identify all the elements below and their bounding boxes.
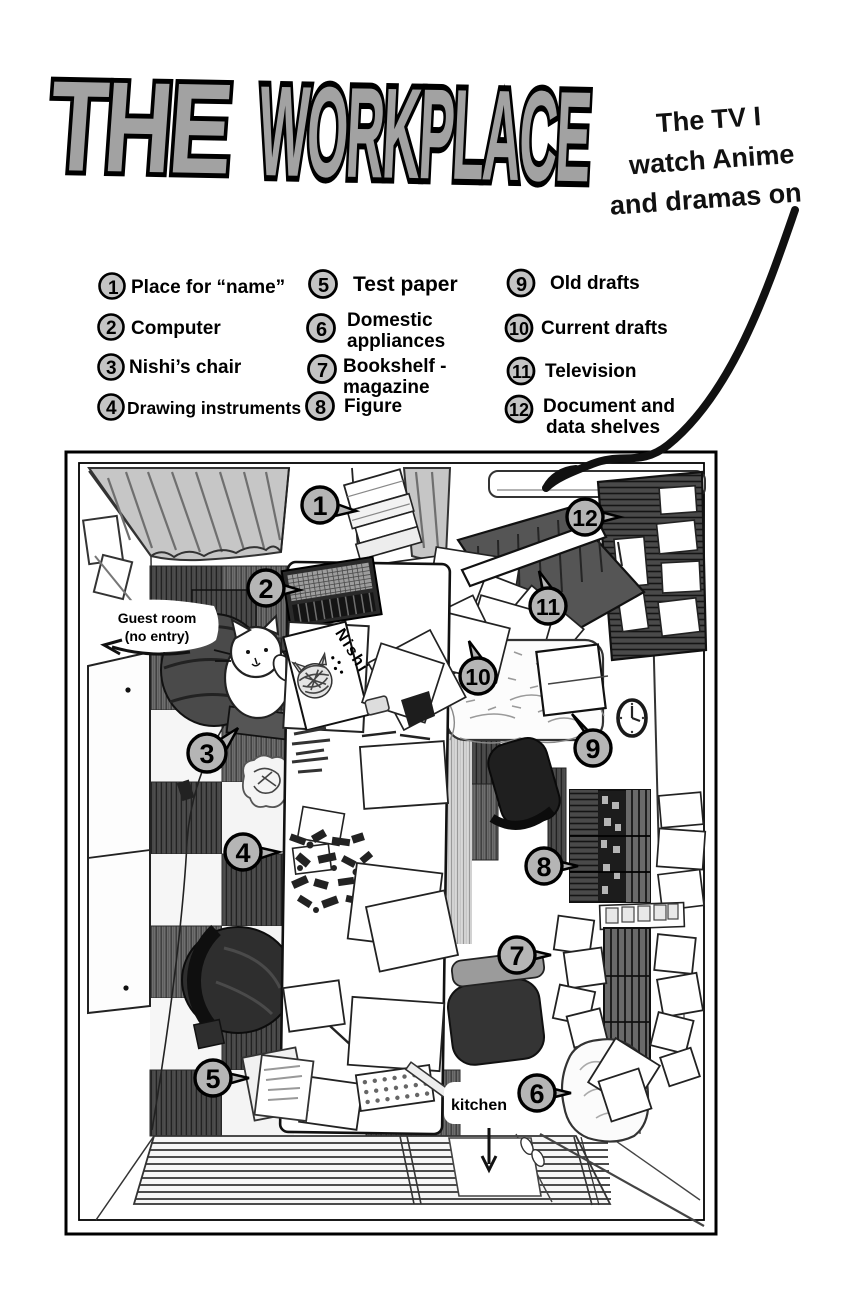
svg-text:11: 11 (512, 362, 531, 382)
svg-text:5: 5 (205, 1064, 220, 1094)
svg-text:Document and: Document and (543, 396, 675, 417)
svg-text:Guest room: Guest room (118, 610, 197, 626)
svg-text:3: 3 (106, 358, 117, 379)
svg-text:2: 2 (106, 318, 117, 339)
svg-text:9: 9 (516, 274, 527, 296)
svg-text:Place for “name”: Place for “name” (131, 277, 285, 298)
svg-text:5: 5 (318, 275, 329, 297)
svg-text:THE: THE (45, 54, 234, 201)
svg-text:8: 8 (315, 397, 326, 419)
svg-text:7: 7 (509, 941, 524, 971)
svg-text:Television: Television (545, 361, 637, 382)
svg-text:Drawing instruments: Drawing instruments (127, 398, 301, 418)
svg-text:Domestic: Domestic (347, 310, 433, 331)
svg-text:10: 10 (509, 319, 529, 339)
svg-text:12: 12 (572, 505, 598, 531)
svg-text:Figure: Figure (344, 396, 402, 417)
svg-text:kitchen: kitchen (451, 1097, 507, 1114)
svg-text:4: 4 (235, 838, 250, 868)
svg-text:(no entry): (no entry) (125, 628, 190, 644)
svg-text:6: 6 (316, 319, 327, 341)
svg-text:7: 7 (317, 360, 328, 382)
svg-text:Bookshelf -: Bookshelf - (343, 356, 446, 377)
svg-text:10: 10 (465, 664, 491, 690)
svg-text:12: 12 (509, 400, 529, 420)
svg-text:Old drafts: Old drafts (550, 273, 640, 294)
svg-text:1: 1 (312, 491, 327, 521)
svg-text:data shelves: data shelves (546, 417, 660, 438)
svg-text:Test paper: Test paper (353, 273, 458, 296)
svg-text:appliances: appliances (347, 331, 445, 352)
svg-text:2: 2 (258, 574, 273, 604)
svg-text:11: 11 (536, 594, 561, 620)
svg-text:Computer: Computer (131, 318, 221, 339)
svg-text:9: 9 (585, 734, 600, 764)
svg-text:Current drafts: Current drafts (541, 318, 668, 339)
svg-text:6: 6 (529, 1079, 544, 1109)
svg-text:Nishi’s chair: Nishi’s chair (129, 357, 242, 378)
svg-text:8: 8 (536, 852, 551, 882)
svg-text:4: 4 (106, 398, 117, 419)
svg-text:1: 1 (108, 278, 119, 299)
svg-text:magazine: magazine (343, 377, 430, 398)
svg-text:3: 3 (199, 739, 214, 769)
svg-text:WORKPLACE: WORKPLACE (256, 59, 593, 209)
